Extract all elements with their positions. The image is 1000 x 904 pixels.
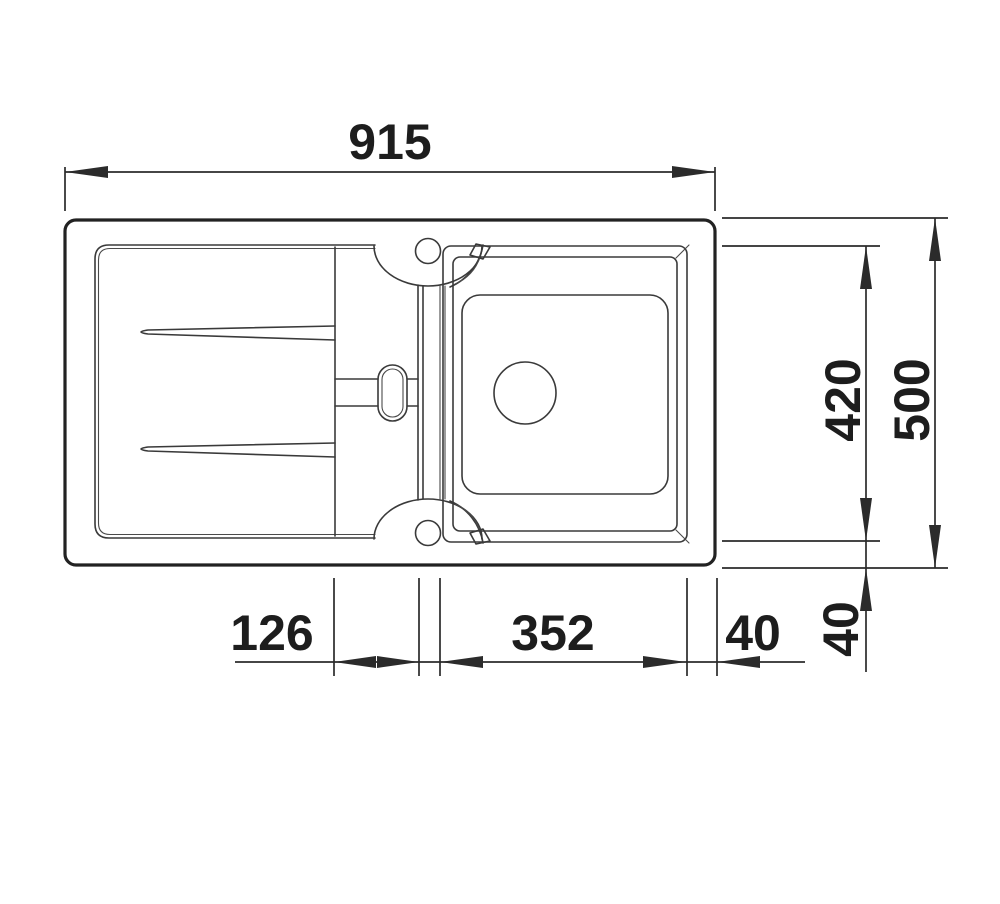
drainboard-edge-bevel: [99, 249, 376, 535]
drain-hole: [494, 362, 556, 424]
divider-channel-left: [418, 285, 423, 500]
accessory-hole: [416, 521, 441, 546]
rim-arc-top-inner: [455, 257, 480, 284]
faucet-hole: [416, 239, 441, 264]
tap-boss-top: [374, 246, 482, 286]
drainboard-groove-bottom: [141, 443, 335, 457]
dim-overall-depth: 500: [884, 218, 941, 568]
dim-bottom-edge-gap: 40: [813, 541, 872, 672]
dimensions: 915 420 500 40: [65, 114, 948, 676]
arrow-left: [65, 166, 108, 178]
dim-label-overall-width: 915: [348, 114, 431, 170]
arrow-right: [672, 166, 715, 178]
dim-right-edge-gap: 40: [717, 605, 781, 668]
drainboard-groove-top: [141, 326, 335, 340]
dim-label-drainer-gap: 126: [230, 605, 313, 661]
sink-drawing: 915 420 500 40: [0, 0, 1000, 904]
bowl-floor: [462, 295, 668, 494]
technical-drawing-page: 915 420 500 40: [0, 0, 1000, 904]
ext-lines-overall-width: [65, 167, 715, 211]
rim-arc-bottom-outer: [450, 501, 483, 543]
arrow-right: [643, 656, 686, 668]
tap-ledge: [374, 239, 490, 546]
dim-label-bowl-width: 352: [511, 605, 594, 661]
dim-label-overall-depth: 500: [884, 358, 940, 441]
dim-label-bottom-edge-gap: 40: [813, 601, 869, 657]
arrow-bottom: [860, 498, 872, 541]
rim-arc-bottom-inner: [455, 504, 480, 531]
bowl: [443, 245, 689, 543]
overflow-channel: [335, 365, 418, 421]
bowl-rim-outer: [443, 246, 687, 542]
arrow-top: [929, 218, 941, 261]
sink-body: [65, 220, 715, 565]
bowl-rim-inner: [453, 257, 677, 531]
dim-label-bowl-depth: 420: [815, 358, 871, 441]
tap-boss-bottom: [374, 499, 482, 539]
sink-outline: [65, 220, 715, 565]
arrow-left: [334, 656, 376, 668]
dim-drainer-gap: 126: [230, 605, 419, 668]
arrow-bottom: [929, 525, 941, 568]
arrow-top: [860, 246, 872, 289]
overflow-oval-inner: [382, 369, 403, 417]
drainboard-edge: [95, 245, 375, 538]
dim-bowl-depth: 420: [815, 246, 872, 541]
dim-label-right-edge-gap: 40: [725, 605, 781, 661]
dim-overall-width: 915: [65, 114, 715, 211]
arrow-left: [440, 656, 483, 668]
drainboard: [95, 245, 375, 538]
arrow-right: [377, 656, 419, 668]
dim-bowl-width: 352: [440, 605, 686, 668]
dim-bottom-row: 126 352 40: [230, 578, 805, 676]
